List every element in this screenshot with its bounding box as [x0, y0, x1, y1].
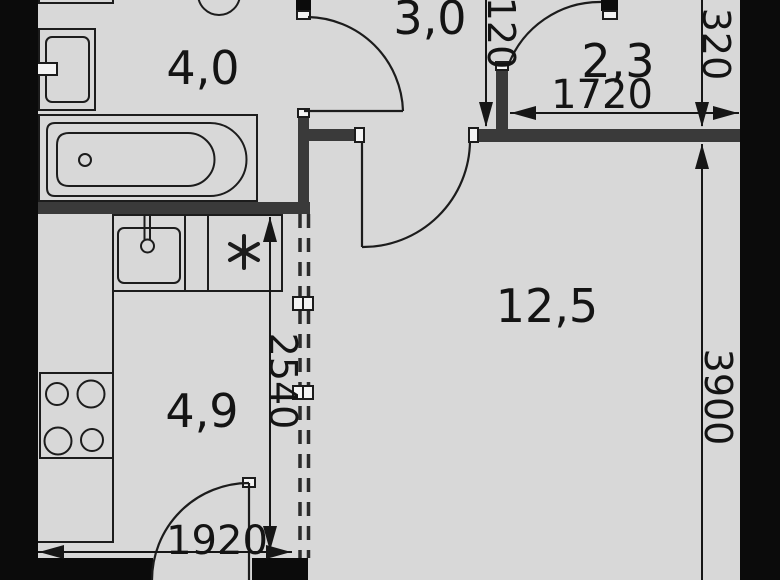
dim-2540-label: 2540	[261, 333, 305, 430]
wall-cap	[355, 128, 364, 142]
room-label-hallway: 3,0	[393, 0, 466, 45]
room-label-bathroom: 4,0	[166, 41, 239, 95]
wall-west	[0, 0, 38, 580]
floor-plan-image: 120 1720 320 3900 2540 1920	[0, 0, 780, 580]
floor-plan-svg: 120 1720 320 3900 2540 1920	[0, 0, 780, 580]
wall-closet-west	[496, 70, 508, 129]
wall-living-north	[478, 129, 740, 142]
dim-320-label: 320	[694, 8, 738, 81]
dim-3900-label: 3900	[696, 349, 740, 446]
wall-south-left	[38, 558, 153, 580]
wall-cap	[469, 128, 478, 142]
room-label-kitchen: 4,9	[165, 384, 238, 438]
wall-east	[740, 0, 780, 580]
wall-hallway-south	[309, 129, 355, 141]
cabinet-cutoff-top	[39, 0, 113, 3]
wall-bathroom-south	[38, 202, 310, 214]
faucet-head-icon	[141, 240, 154, 253]
wall-cap	[603, 11, 617, 19]
dim-1920-label: 1920	[166, 518, 268, 564]
wall-stub-top-right	[601, 0, 618, 11]
room-label-closet: 2,3	[581, 34, 654, 88]
dim-120-label: 120	[479, 0, 523, 69]
wall-bathroom-east	[298, 116, 309, 214]
room-label-living: 12,5	[496, 279, 598, 333]
bathtub-rim	[39, 115, 257, 201]
